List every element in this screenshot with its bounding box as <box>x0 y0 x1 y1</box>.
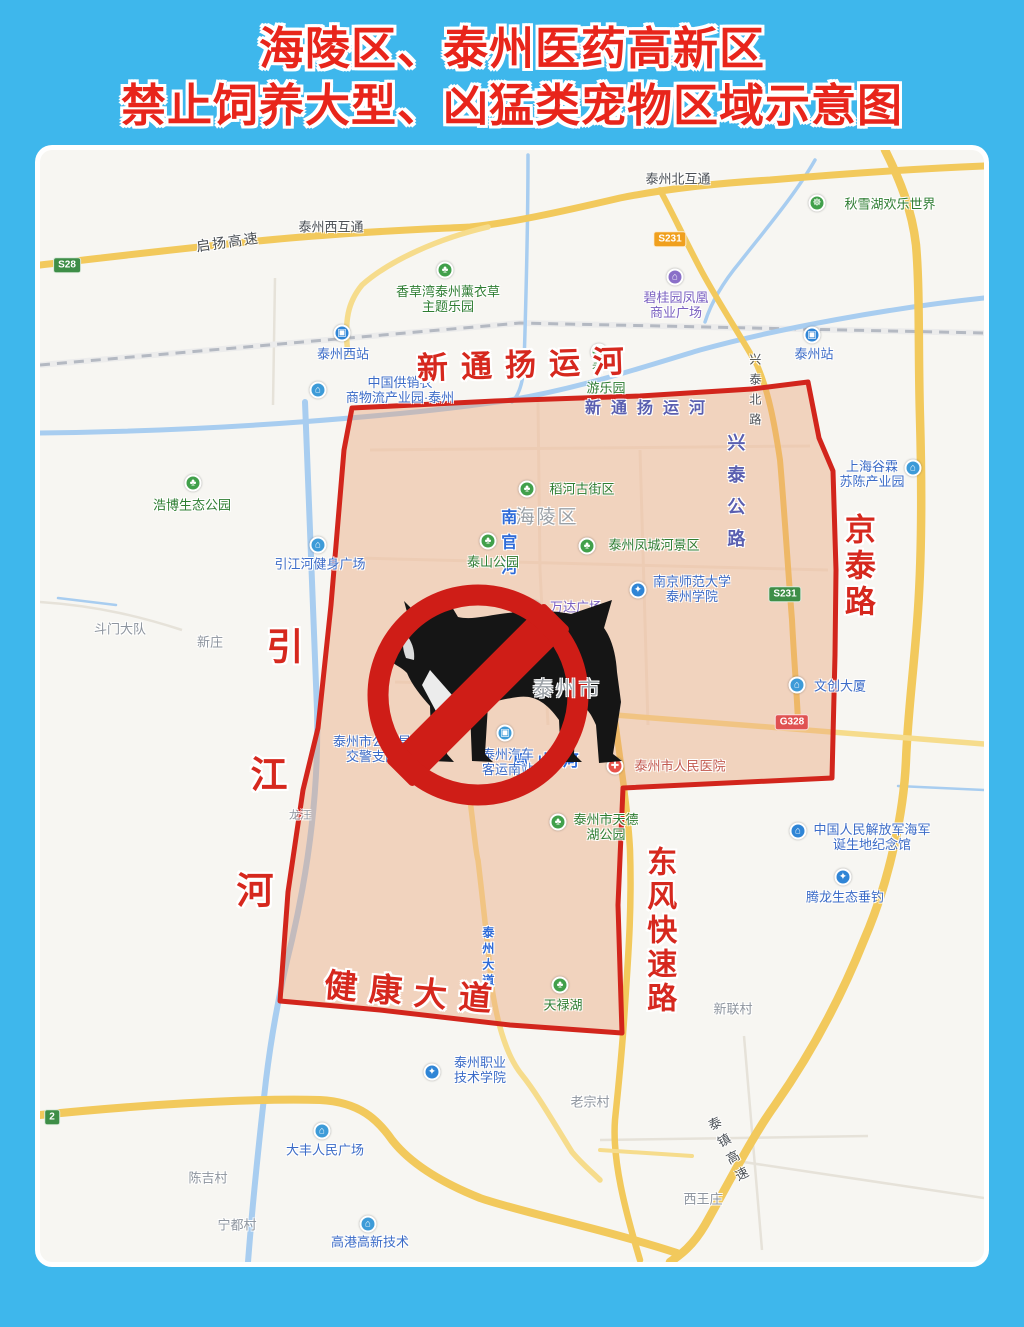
poster-title-line1: 海陵区、泰州医药高新区 <box>0 20 1024 77</box>
poster-title: 海陵区、泰州医药高新区 禁止饲养大型、凶猛类宠物区域示意图 <box>0 20 1024 134</box>
map-panel: 新通扬运河京泰路引江河健康大道东风快速路新通扬运河兴泰公路南官河周山河泰州大道启… <box>40 150 984 1262</box>
poster-title-line2: 禁止饲养大型、凶猛类宠物区域示意图 <box>0 77 1024 134</box>
taizhou-city-label: 泰州市 <box>533 678 602 702</box>
poster: { "title": { "line1": "海陵区、泰州医药高新区", "li… <box>0 0 1024 1327</box>
map-top-labels-layer: 泰州市 <box>40 150 984 1262</box>
